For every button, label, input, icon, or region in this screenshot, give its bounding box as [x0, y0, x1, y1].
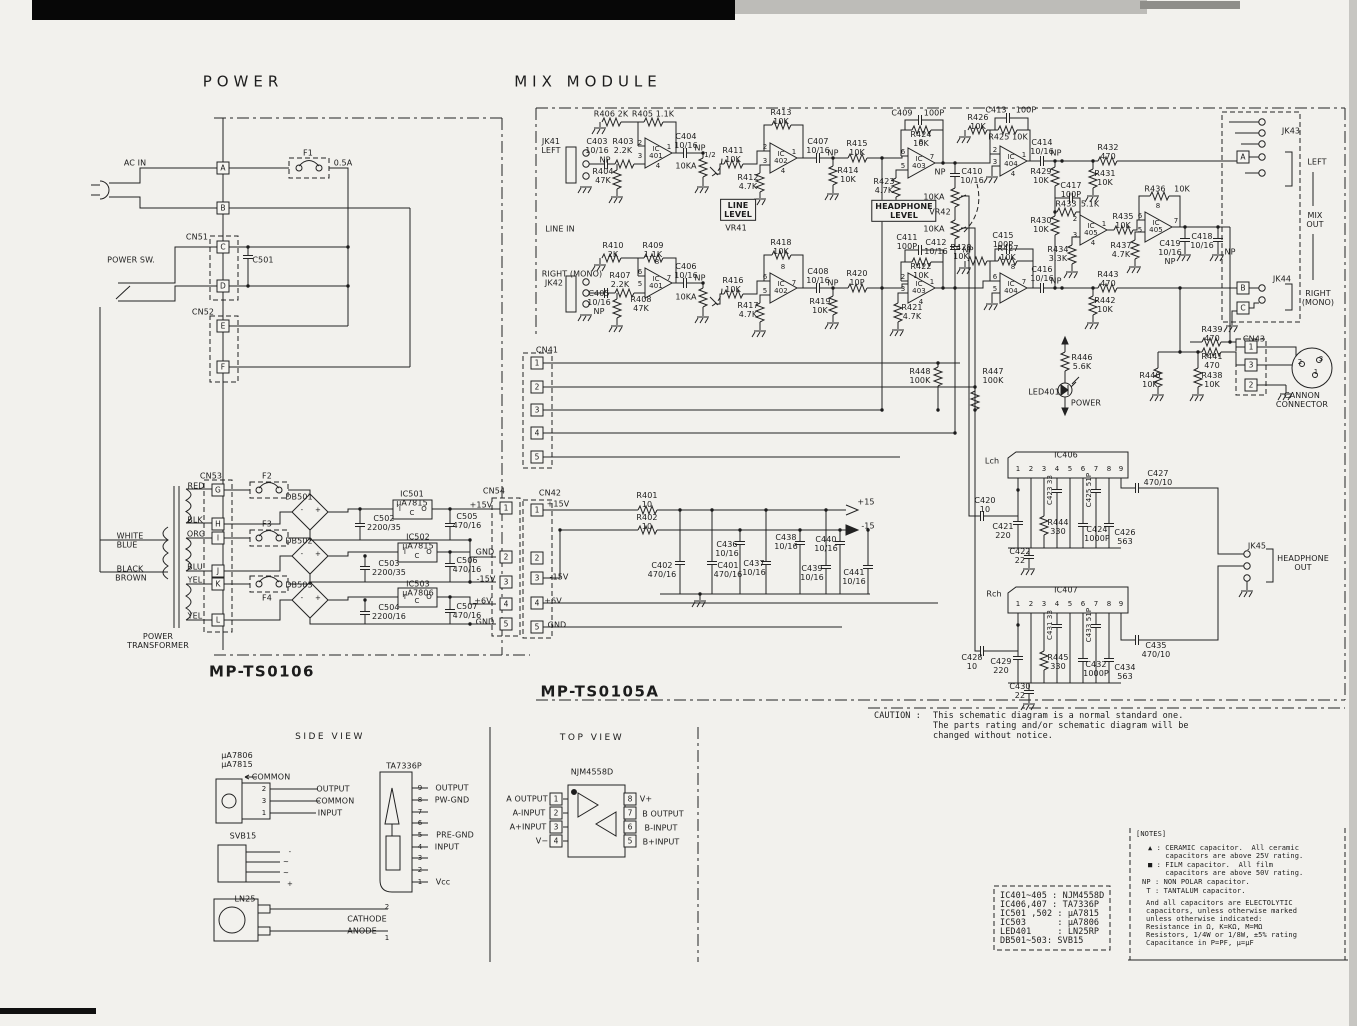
pinout-drawings — [214, 727, 1348, 962]
component-symbols — [578, 113, 1357, 710]
board-outlines — [214, 108, 1345, 962]
connector-outlines — [204, 112, 1345, 960]
schematic-drawing — [0, 0, 1357, 1026]
power-wires — [91, 118, 501, 650]
schematic-page: POWERAC INPOWER SW.F10.5ACN51C501CN52CN5… — [0, 0, 1357, 1026]
